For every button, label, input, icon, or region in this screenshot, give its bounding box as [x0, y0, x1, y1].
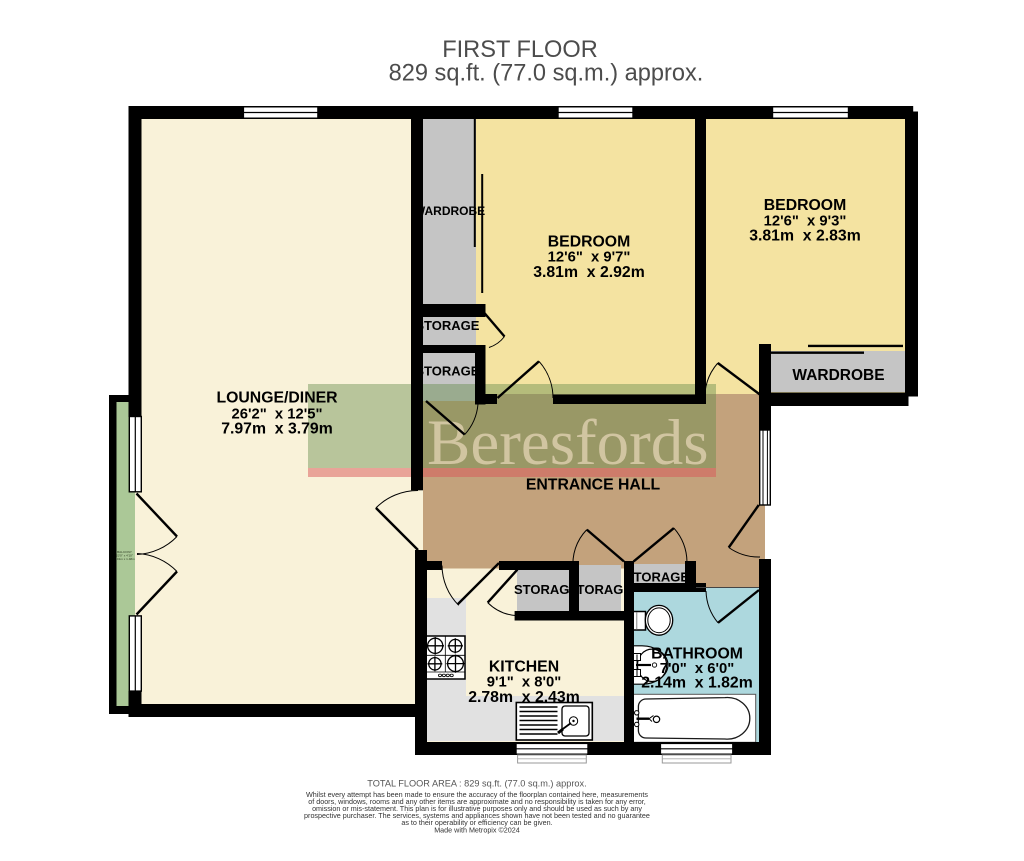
svg-text:829 sq.ft. (77.0 sq.m.) approx: 829 sq.ft. (77.0 sq.m.) approx.: [389, 61, 704, 87]
svg-text:ENTRANCE HALL: ENTRANCE HALL: [526, 476, 661, 493]
svg-text:3.81m x 2.83m: 3.81m x 2.83m: [749, 228, 861, 245]
svg-text:LOUNGE/DINER: LOUNGE/DINER: [216, 390, 338, 407]
svg-text:STORAGE: STORAGE: [415, 364, 479, 379]
svg-text:WARDROBE: WARDROBE: [792, 367, 884, 384]
svg-text:BATHROOM: BATHROOM: [651, 645, 743, 662]
svg-text:7.97m x 3.79m: 7.97m x 3.79m: [221, 421, 333, 438]
svg-text:2.78m x 2.43m: 2.78m x 2.43m: [468, 689, 580, 706]
svg-text:FIRST FLOOR: FIRST FLOOR: [442, 37, 598, 63]
svg-text:BEDROOM: BEDROOM: [764, 197, 847, 214]
svg-text:Beresfords: Beresfords: [427, 407, 709, 479]
svg-text:7.01m x 1.48m: 7.01m x 1.48m: [114, 557, 135, 561]
svg-text:BEDROOM: BEDROOM: [548, 233, 631, 250]
svg-text:Made with Metropix ©2024: Made with Metropix ©2024: [434, 825, 520, 834]
svg-text:TOTAL FLOOR AREA : 829 sq.ft.: TOTAL FLOOR AREA : 829 sq.ft. (77.0 sq.m…: [367, 779, 586, 789]
svg-text:12'6" x 9'7": 12'6" x 9'7": [548, 249, 631, 265]
svg-text:2.14m x 1.82m: 2.14m x 1.82m: [641, 675, 753, 692]
svg-text:3.81m x 2.92m: 3.81m x 2.92m: [533, 264, 645, 281]
svg-text:STORAGE: STORAGE: [415, 318, 479, 333]
svg-text:KITCHEN: KITCHEN: [489, 658, 559, 675]
svg-text:STORAGE: STORAGE: [625, 570, 689, 585]
